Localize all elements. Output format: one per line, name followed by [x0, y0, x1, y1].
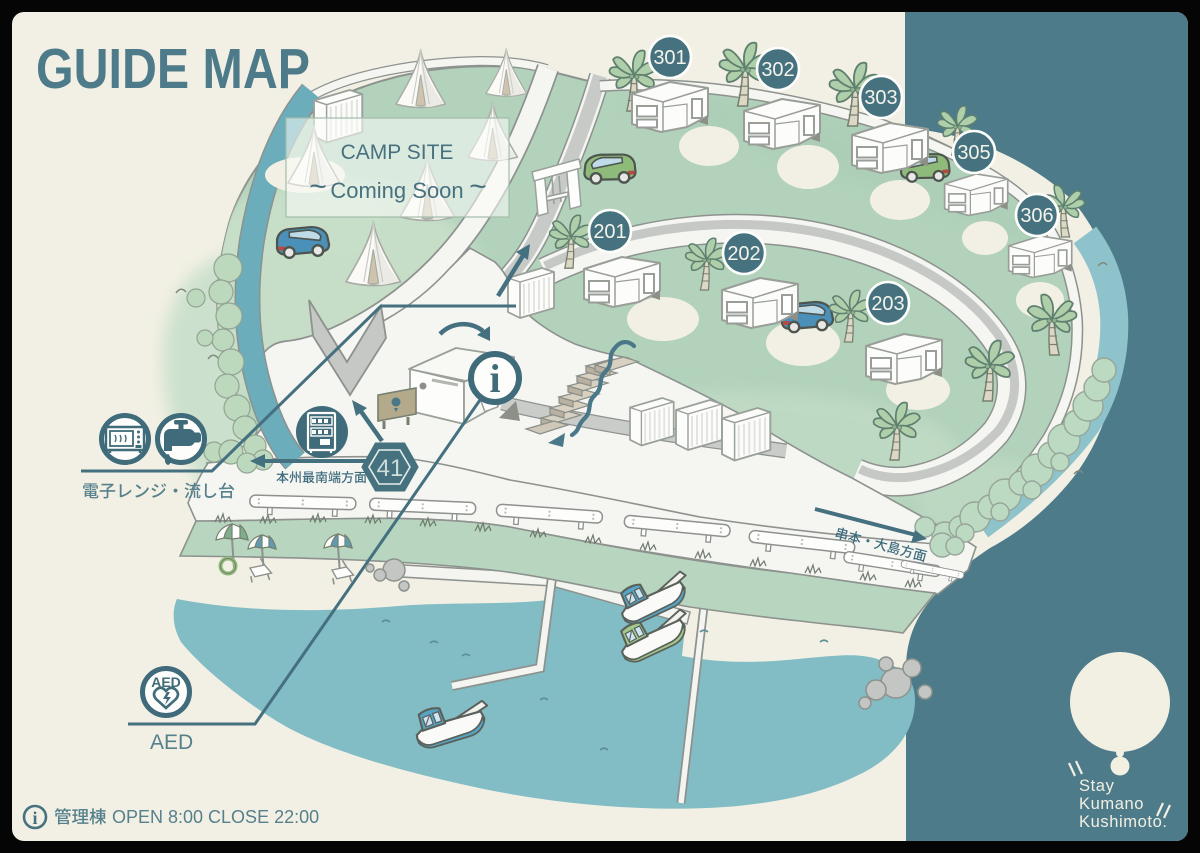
svg-text:305: 305 [957, 142, 990, 164]
svg-text:Coming Soon: Coming Soon [330, 178, 463, 203]
svg-text:Kushimoto.: Kushimoto. [1079, 813, 1168, 831]
svg-text:201: 201 [593, 221, 626, 243]
svg-text:202: 202 [727, 243, 760, 265]
svg-text:Stay: Stay [1079, 777, 1115, 795]
svg-text:303: 303 [864, 87, 897, 109]
svg-text:41: 41 [377, 455, 404, 482]
svg-text:~: ~ [309, 170, 327, 203]
svg-text:301: 301 [653, 47, 686, 69]
svg-text:203: 203 [871, 293, 904, 315]
svg-text:i: i [489, 356, 500, 401]
svg-text:GUIDE MAP: GUIDE MAP [36, 37, 310, 101]
svg-text:AED: AED [151, 674, 181, 690]
svg-text:~: ~ [469, 170, 487, 203]
svg-text:Kumano: Kumano [1079, 795, 1144, 813]
svg-text:i: i [32, 808, 37, 828]
svg-text:306: 306 [1020, 205, 1053, 227]
svg-text:OPEN 8:00 CLOSE 22:00: OPEN 8:00 CLOSE 22:00 [112, 807, 319, 827]
svg-text:302: 302 [761, 59, 794, 81]
svg-text:AED: AED [150, 731, 193, 754]
svg-text:CAMP SITE: CAMP SITE [341, 141, 454, 164]
